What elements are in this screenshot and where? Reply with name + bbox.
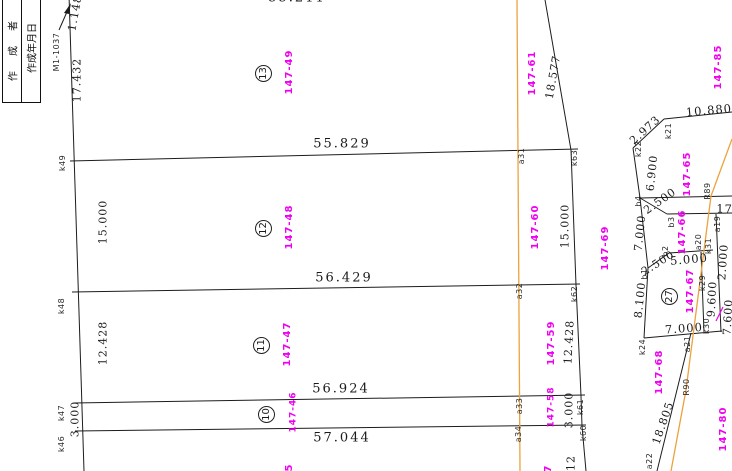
measurement-label: 15.000 bbox=[560, 204, 571, 249]
title-block-cell-author: 作 成 者 bbox=[3, 0, 22, 102]
measurement-label: 2.000 bbox=[716, 243, 730, 280]
lot-number-label: 147-61 bbox=[528, 51, 538, 96]
survey-point-label: k48 bbox=[58, 298, 66, 314]
lot-number-label: 147-68 bbox=[655, 350, 665, 395]
parcel-number-badge: 11 bbox=[253, 337, 270, 354]
survey-point-label: R90 bbox=[683, 378, 691, 395]
measurement-label: 57.044 bbox=[313, 432, 371, 445]
cadastral-map-sheet: 作 成 者 作成年月日 55.21155.82956.42956.92457.0… bbox=[0, 0, 732, 471]
measurement-label: 17. bbox=[716, 203, 732, 215]
parcel-boundary-lines bbox=[0, 0, 732, 471]
measurement-label: 56.429 bbox=[315, 272, 373, 285]
parcel-number-badge: 10 bbox=[258, 406, 275, 423]
measurement-label: 3.000 bbox=[564, 392, 575, 429]
title-block-table: 作 成 者 作成年月日 bbox=[2, 0, 41, 103]
survey-point-label: b3 bbox=[668, 216, 676, 227]
survey-point-label: k46 bbox=[58, 436, 66, 452]
lot-number-label: 147-60 bbox=[531, 205, 541, 250]
measurement-label: 7.000 bbox=[665, 322, 704, 336]
lot-number-label: 147-45 bbox=[285, 464, 295, 471]
lot-number-label: 147-58 bbox=[548, 386, 557, 427]
lot-number-label: 147-85 bbox=[714, 45, 724, 90]
survey-point-label: k29 bbox=[699, 275, 707, 291]
survey-point-label: a22 bbox=[646, 453, 654, 470]
measurement-label: 55.211 bbox=[268, 0, 326, 5]
author-label: 作 成 者 bbox=[5, 14, 20, 80]
survey-point-label: a32 bbox=[516, 283, 524, 300]
lot-number-label: 147-65 bbox=[683, 152, 693, 197]
survey-point-label: k24 bbox=[639, 339, 647, 355]
lot-number-label: 147-67 bbox=[686, 269, 696, 314]
parcel-number-badge: 12 bbox=[255, 220, 272, 237]
survey-point-label: k63 bbox=[571, 150, 579, 166]
survey-point-label: k47 bbox=[58, 405, 66, 421]
measurement-label: 9.600 bbox=[706, 280, 719, 317]
survey-point-label: k61 bbox=[577, 399, 585, 415]
survey-point-label: a21 bbox=[684, 336, 692, 353]
lot-number-label: 147-49 bbox=[285, 50, 295, 95]
measurement-label: 12.428 bbox=[98, 321, 109, 366]
survey-point-label: k30 bbox=[703, 318, 711, 334]
survey-point-label: k22 bbox=[635, 141, 643, 157]
lot-number-label: 147-57 bbox=[544, 465, 554, 471]
parcel-number-badge: 27 bbox=[661, 288, 678, 305]
lot-number-label: 147-59 bbox=[547, 321, 557, 366]
survey-point-label: k21 bbox=[665, 123, 673, 139]
lot-number-label: 147-46 bbox=[290, 391, 299, 432]
measurement-label: 8.100 bbox=[633, 281, 648, 318]
measurement-label: 17.432 bbox=[72, 58, 83, 103]
measurement-label: 6.900 bbox=[645, 154, 660, 191]
survey-point-label: a19 bbox=[714, 216, 722, 233]
survey-point-label: k62 bbox=[571, 286, 579, 302]
survey-point-label: R89 bbox=[704, 182, 712, 199]
date-label: 作成年月日 bbox=[24, 23, 39, 73]
parcel-number-badge: 13 bbox=[255, 65, 272, 82]
measurement-label: 56.924 bbox=[312, 383, 370, 396]
survey-point-label: k60 bbox=[580, 425, 588, 441]
survey-point-label: b1 bbox=[641, 268, 649, 279]
survey-point-label: a34 bbox=[515, 426, 523, 443]
survey-point-label: k31 bbox=[705, 238, 713, 254]
lot-number-label: 147-47 bbox=[283, 322, 293, 367]
lot-number-label: 147-48 bbox=[285, 205, 295, 250]
measurement-label: 15.000 bbox=[98, 200, 109, 245]
measurement-label: 7.600 bbox=[722, 298, 732, 335]
survey-point-label: a33 bbox=[516, 398, 524, 415]
lot-number-label: 147-69 bbox=[601, 226, 611, 271]
lot-number-label: 147-66 bbox=[678, 210, 688, 255]
lot-number-label: 147-80 bbox=[719, 407, 729, 452]
survey-point-label: a31 bbox=[518, 148, 526, 165]
survey-point-label: M1-1037 bbox=[53, 33, 61, 72]
title-block-cell-date: 作成年月日 bbox=[22, 0, 40, 102]
survey-point-label: b2 bbox=[662, 245, 670, 256]
survey-point-label: k49 bbox=[59, 155, 67, 171]
measurement-label: 12.428 bbox=[562, 319, 575, 364]
measurement-label: 7.000 bbox=[633, 214, 648, 251]
survey-point-label: b4 bbox=[635, 195, 643, 206]
measurement-label: 3.000 bbox=[70, 401, 81, 438]
measurement-label: 55.829 bbox=[313, 138, 371, 151]
survey-point-label: a20 bbox=[695, 234, 703, 251]
measurement-label: 12 bbox=[566, 455, 577, 471]
